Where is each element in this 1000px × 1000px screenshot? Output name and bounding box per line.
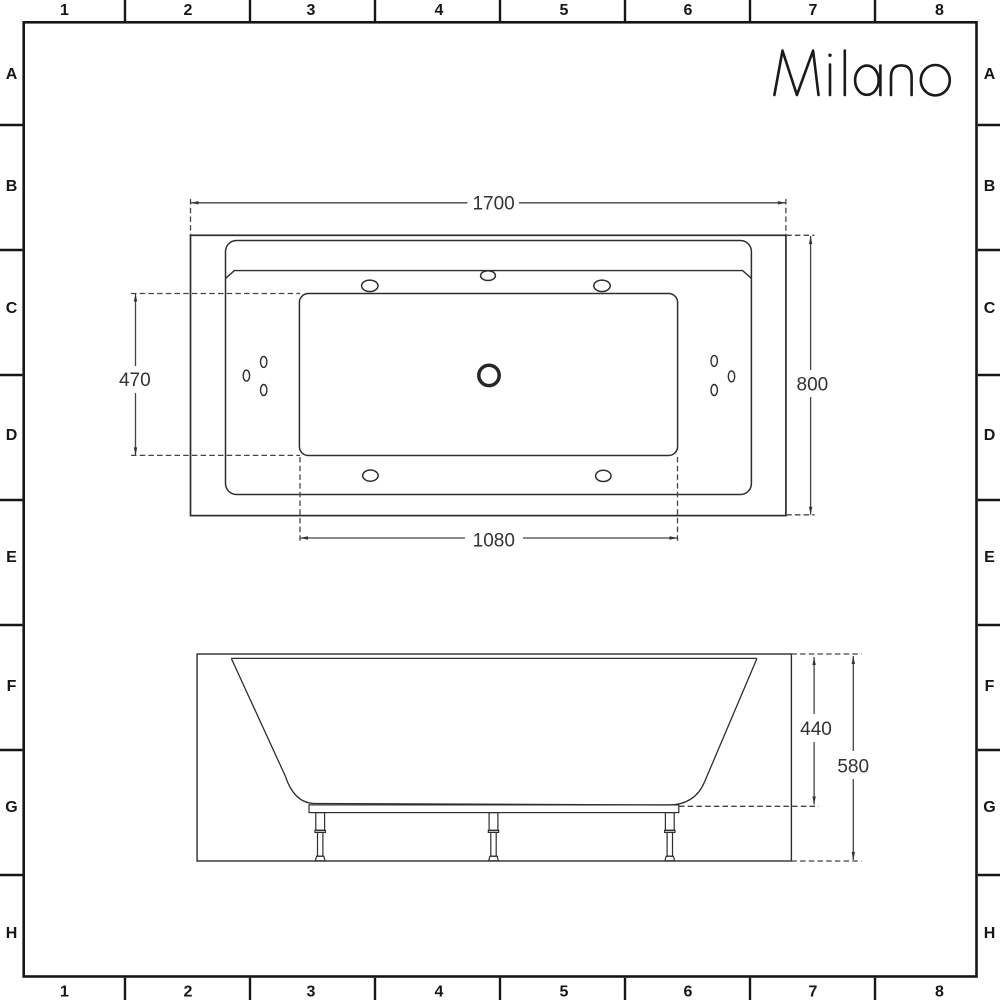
svg-text:E: E xyxy=(984,549,995,566)
svg-text:1080: 1080 xyxy=(473,530,515,551)
svg-text:H: H xyxy=(984,925,996,942)
svg-text:F: F xyxy=(985,678,995,695)
svg-text:1700: 1700 xyxy=(472,193,514,214)
svg-text:1: 1 xyxy=(60,984,69,1000)
svg-text:2: 2 xyxy=(184,2,193,19)
svg-text:B: B xyxy=(984,178,996,195)
svg-text:5: 5 xyxy=(560,2,569,19)
svg-text:6: 6 xyxy=(684,984,693,1000)
svg-text:D: D xyxy=(984,427,996,444)
svg-text:A: A xyxy=(6,66,18,83)
svg-text:8: 8 xyxy=(935,2,944,19)
svg-text:4: 4 xyxy=(435,984,444,1000)
svg-text:E: E xyxy=(6,549,17,566)
svg-text:1: 1 xyxy=(60,2,69,19)
svg-text:4: 4 xyxy=(435,2,444,19)
svg-text:3: 3 xyxy=(307,2,316,19)
svg-text:2: 2 xyxy=(184,984,193,1000)
svg-text:G: G xyxy=(5,799,17,816)
svg-text:F: F xyxy=(7,678,17,695)
svg-text:5: 5 xyxy=(560,984,569,1000)
svg-text:C: C xyxy=(984,300,996,317)
svg-text:800: 800 xyxy=(797,374,829,395)
svg-text:7: 7 xyxy=(809,2,818,19)
svg-text:H: H xyxy=(6,925,18,942)
svg-text:A: A xyxy=(984,66,996,83)
svg-text:C: C xyxy=(6,300,18,317)
svg-text:580: 580 xyxy=(837,757,869,778)
svg-text:7: 7 xyxy=(809,984,818,1000)
svg-text:6: 6 xyxy=(684,2,693,19)
svg-text:440: 440 xyxy=(800,719,832,740)
svg-text:470: 470 xyxy=(119,370,151,391)
svg-text:G: G xyxy=(983,799,995,816)
svg-text:D: D xyxy=(6,427,18,444)
svg-text:3: 3 xyxy=(307,984,316,1000)
svg-text:B: B xyxy=(6,178,18,195)
svg-text:8: 8 xyxy=(935,984,944,1000)
